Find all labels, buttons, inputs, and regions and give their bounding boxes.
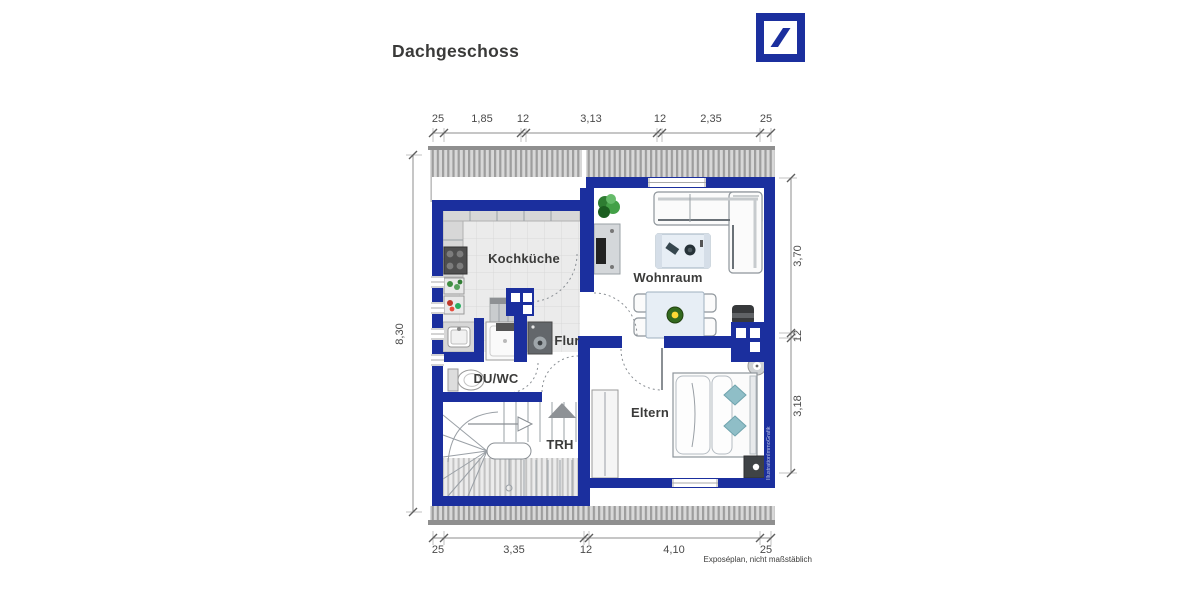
room-label-flur: Flur — [554, 333, 579, 348]
dimension-left: 8,30 — [394, 151, 422, 516]
dim-bottom-1: 3,35 — [503, 544, 524, 556]
floor-plan: Kochküche Wohnraum Flur DU/WC TRH Eltern… — [0, 0, 1200, 600]
dim-top-2: 12 — [517, 113, 529, 125]
shower-wall — [474, 318, 484, 362]
washing-machine — [528, 322, 552, 354]
dining-table — [634, 292, 716, 338]
kitchen-sink — [448, 327, 470, 347]
kitchen-chimney — [506, 288, 534, 316]
dimension-top: 25 1,85 12 3,13 12 2,35 25 — [429, 113, 775, 142]
dim-bottom-2: 12 — [580, 544, 592, 556]
dim-top-4: 12 — [654, 113, 666, 125]
trh-eltern-wall — [578, 348, 590, 496]
plan-disclaimer: Exposéplan, nicht maßstäblich — [600, 555, 812, 564]
room-label-eltern: Eltern — [631, 405, 669, 420]
double-bed — [673, 373, 757, 457]
veggie-crate — [444, 278, 464, 294]
kitchen-flur-wall — [514, 316, 527, 362]
duwc-bottom-wall — [432, 392, 542, 402]
watermark: IllustrationImmoGrafik — [766, 426, 772, 480]
left-wall-window — [431, 354, 444, 366]
trh-bottom-wall — [432, 496, 590, 506]
kitchen-top-wall — [432, 200, 582, 211]
dim-bottom-0: 25 — [432, 544, 444, 556]
coffee-table — [656, 234, 710, 268]
wardrobe — [592, 390, 618, 478]
left-wall-window — [431, 328, 444, 340]
dim-top-3: 3,13 — [580, 113, 601, 125]
dim-left-0: 8,30 — [394, 323, 406, 344]
chimney — [731, 322, 764, 362]
dim-top-0: 25 — [432, 113, 444, 125]
room-label-trh: TRH — [546, 437, 573, 452]
kitchen-wohnraum-wall — [580, 188, 594, 292]
dim-right-0: 3,70 — [792, 245, 804, 266]
fruit-crate — [444, 296, 464, 314]
dimension-bottom: 25 3,35 12 4,10 25 — [429, 531, 775, 556]
wohnraum-window — [648, 178, 706, 187]
left-wall-window — [431, 302, 444, 314]
dim-right-1: 12 — [792, 330, 804, 342]
dim-top-6: 25 — [760, 113, 772, 125]
room-label-duwc: DU/WC — [473, 371, 518, 386]
stair-handrail — [487, 443, 531, 459]
eltern-window — [672, 479, 718, 487]
tv-sideboard — [594, 224, 620, 274]
dim-right-2: 3,18 — [792, 395, 804, 416]
left-wall-window — [431, 276, 444, 288]
dim-top-5: 2,35 — [700, 113, 721, 125]
room-label-wohnraum: Wohnraum — [633, 270, 702, 285]
dimension-right: 3,70 12 3,18 — [779, 174, 804, 477]
floor-plan-page: Dachgeschoss — [0, 0, 1200, 600]
stove — [444, 247, 467, 274]
dim-top-1: 1,85 — [471, 113, 492, 125]
flur-eltern-wall — [578, 336, 622, 348]
room-label-kochkueche: Kochküche — [488, 251, 560, 266]
